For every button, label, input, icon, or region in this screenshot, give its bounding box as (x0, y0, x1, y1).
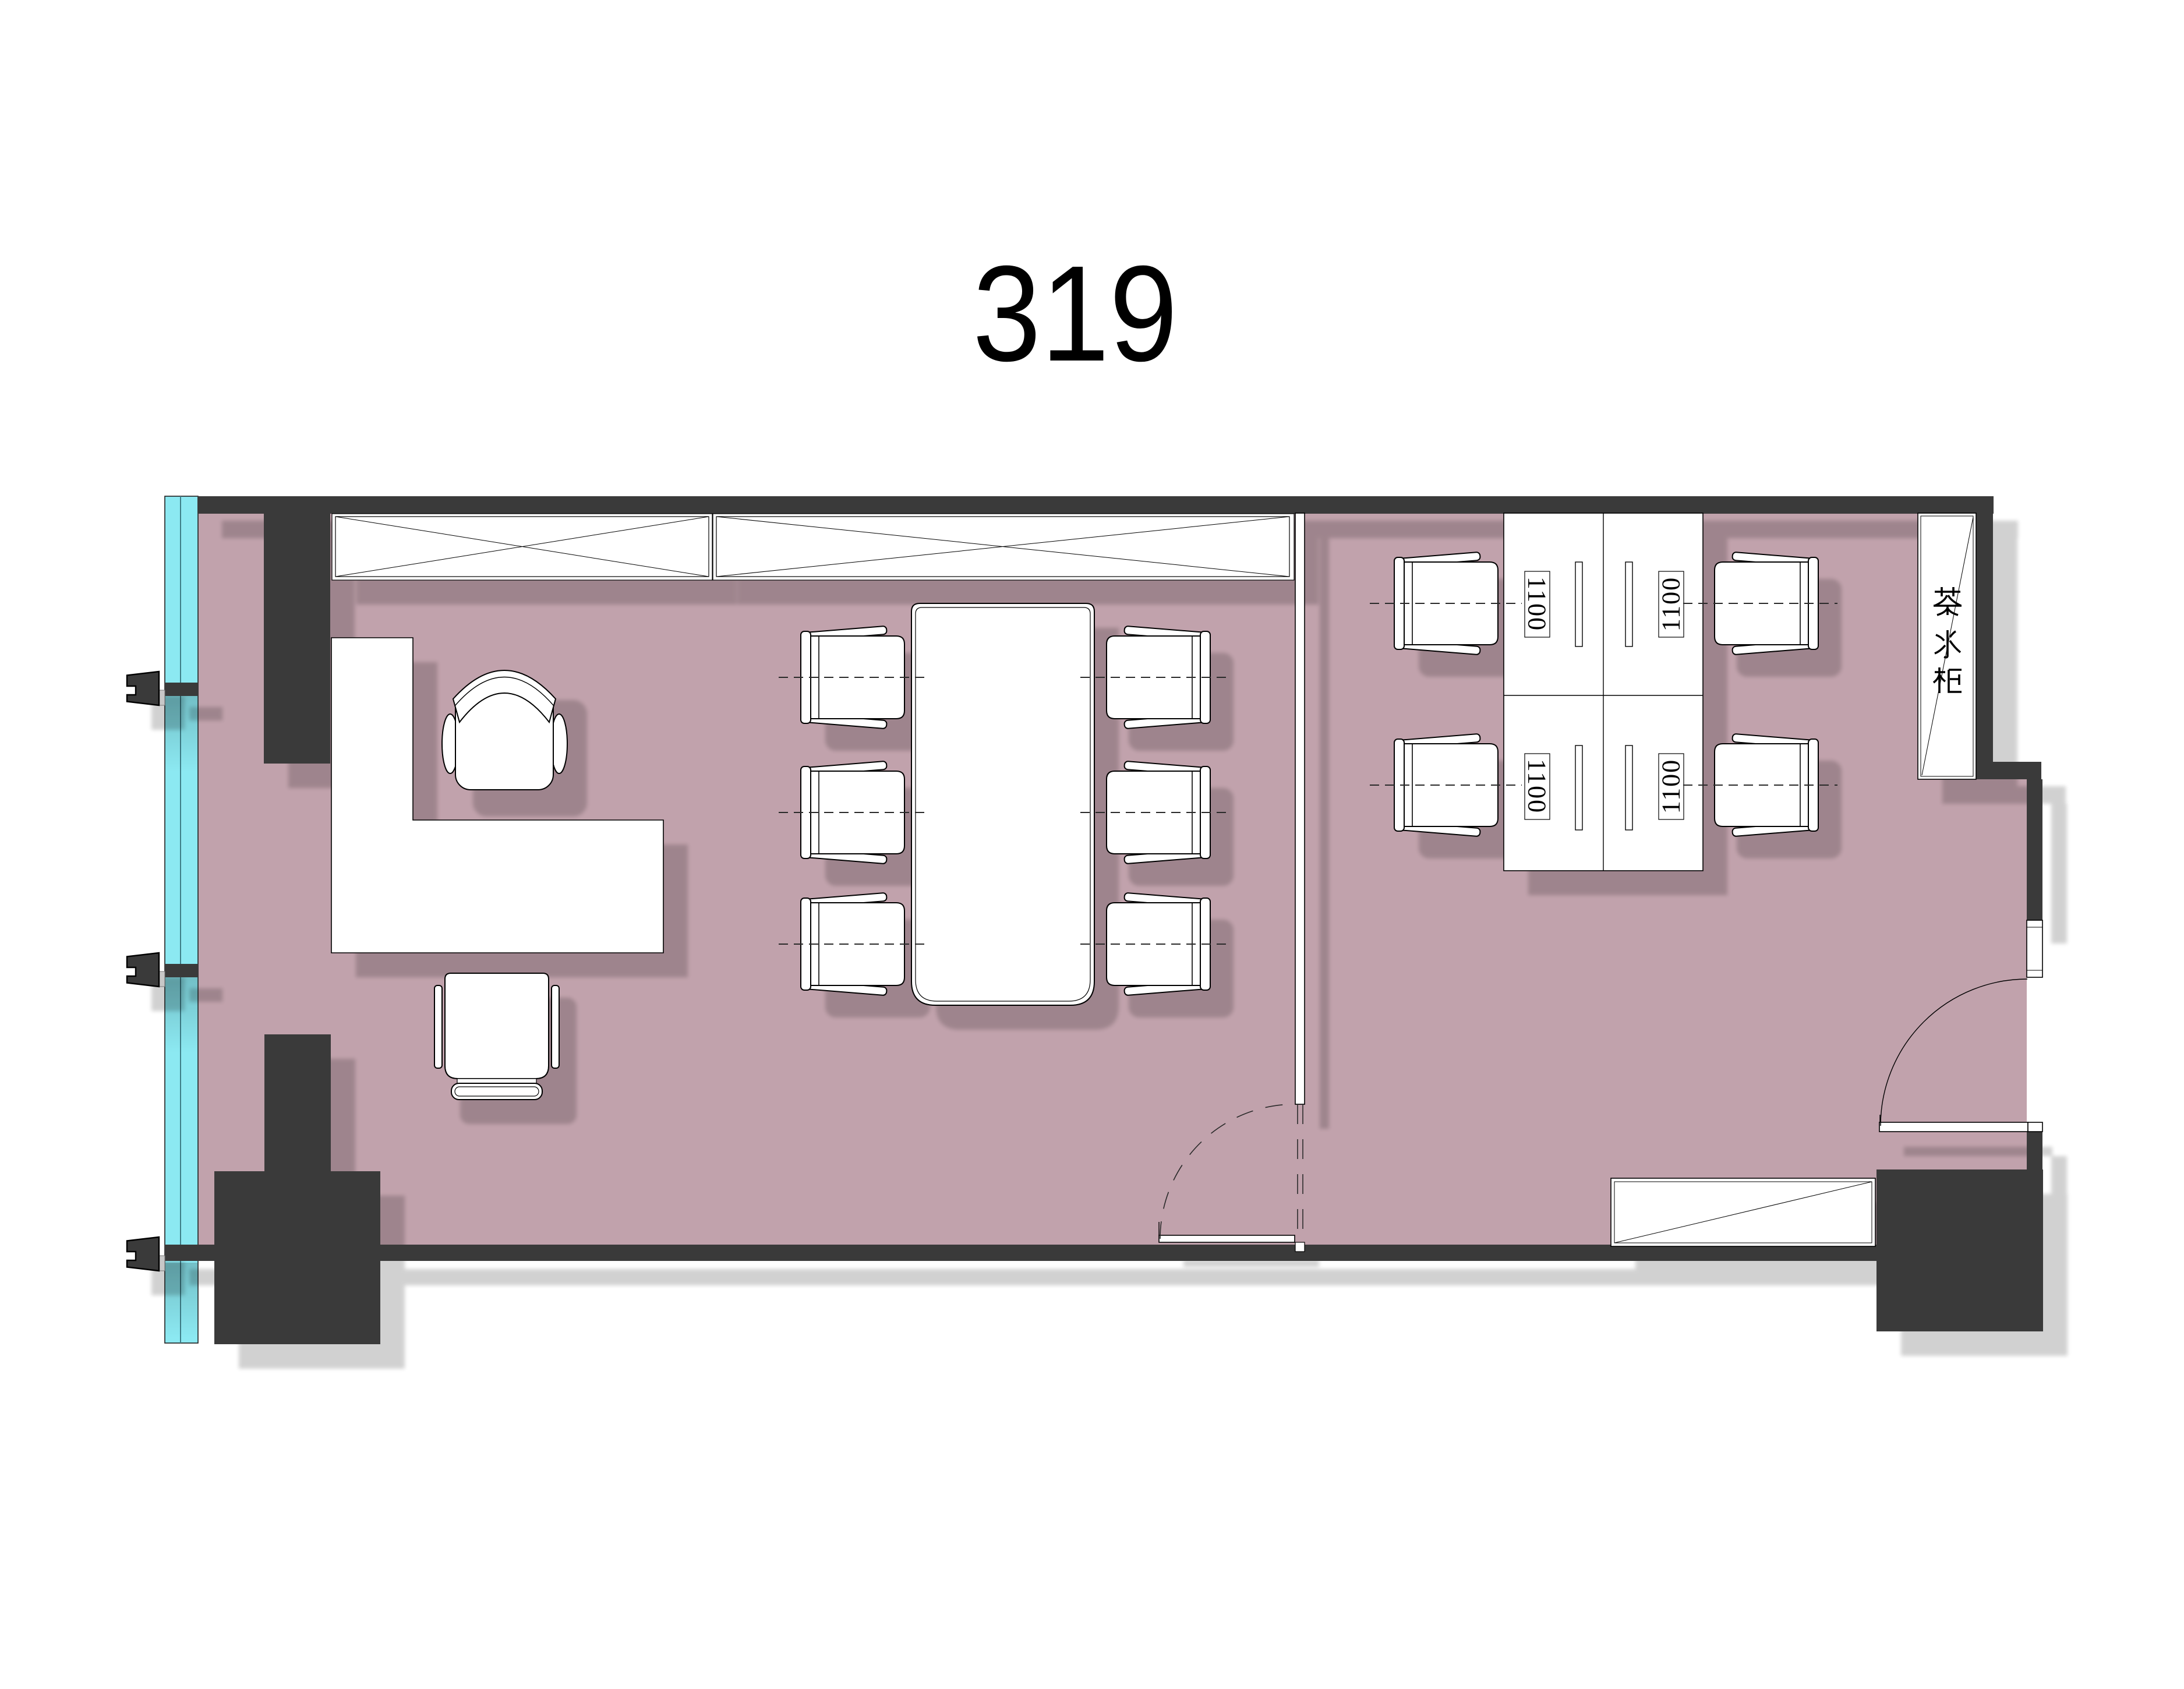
svg-text:1100: 1100 (1523, 759, 1552, 814)
svg-text:1100: 1100 (1657, 759, 1685, 814)
svg-text:1100: 1100 (1523, 577, 1552, 631)
svg-text:319: 319 (973, 237, 1178, 390)
svg-text:1100: 1100 (1657, 577, 1685, 631)
